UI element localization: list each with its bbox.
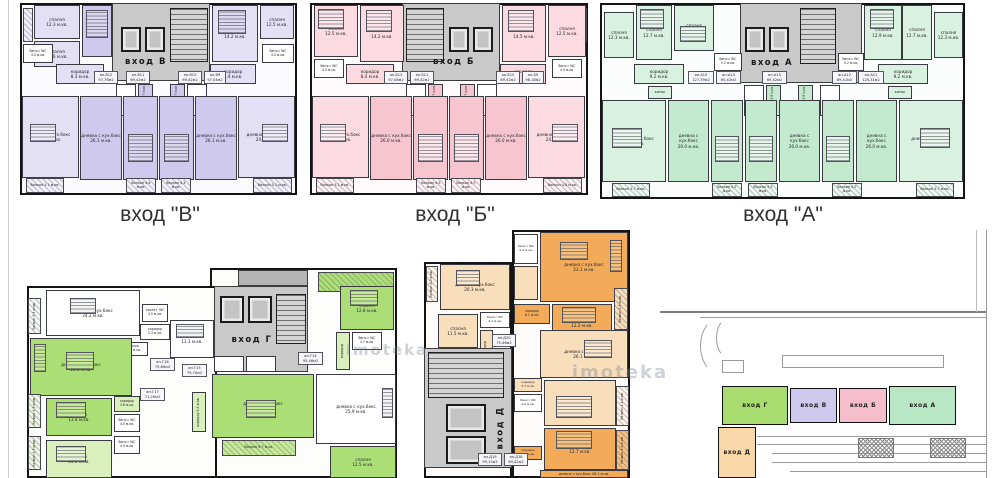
balcony: балкон 5.1 м.кв. xyxy=(316,178,354,193)
room-living: дневна с кух.бокс26.1 м.кв. xyxy=(80,96,122,180)
room-living-label: дневна с кух.бокс xyxy=(857,133,896,143)
table-icon xyxy=(560,242,588,260)
apartment-label-area: 79,70м2 xyxy=(187,371,202,376)
table-icon xyxy=(920,128,950,148)
room-bath: баня с WC4.0 м.кв. xyxy=(314,59,344,78)
balcony-label: балкон 6.7 м.кв. xyxy=(245,446,274,450)
room-corridor-area: 3.8 м.кв. xyxy=(120,404,134,408)
bed-icon xyxy=(680,26,706,42)
bed-icon xyxy=(749,136,773,162)
room-living: дневна с кух.бокс26.0 м.кв. xyxy=(370,96,412,180)
elevator-icon xyxy=(473,27,493,52)
room-bedroom-area: 14.5 м.кв. xyxy=(513,34,534,39)
room-bath: баня с WC4.0 м.кв. xyxy=(552,59,582,78)
entrance-title: вход Б xyxy=(424,56,484,68)
room-living-label: дневна с кух.бокс xyxy=(669,133,708,143)
room-bath: баня с WC4.0 м.кв. xyxy=(262,44,294,63)
apartment-label-area: 69,41м2 xyxy=(837,78,852,83)
room-bedroom-area: 12.3 м.кв. xyxy=(46,22,67,27)
room-bath-area: 4.0 м.кв. xyxy=(558,69,575,73)
entrance-caption-a: вход "А" xyxy=(718,203,848,227)
balcony-label: балкон 4.4 м.кв. xyxy=(127,182,155,190)
elevator-icon xyxy=(745,27,765,52)
elevator-icon xyxy=(248,296,272,323)
apartment-label-area: 69,42м2 xyxy=(500,78,515,83)
balcony-label: балкон 5.1 м.кв. xyxy=(31,184,60,188)
site-block-v-label: вход В xyxy=(800,402,826,409)
site-block-d-label: вход Д xyxy=(723,449,750,456)
balcony: балкон 4.5 м.кв. xyxy=(416,178,446,193)
balcony: балкон 5.7 м.кв. xyxy=(612,183,650,197)
room-living: дневна с кух.бокс26.0 м.кв. xyxy=(856,100,897,182)
room-bedroom-area: 12.9 м.кв. xyxy=(872,33,893,38)
room-bath-area: 4.0 м.кв. xyxy=(118,445,135,449)
room-bath-area: 5.2 м.кв. xyxy=(719,62,736,66)
room-bedroom-label: спалня xyxy=(906,27,927,32)
balcony-label: балкон 4.8 м.кв. xyxy=(548,184,577,188)
room-utility xyxy=(246,356,276,372)
apartment-label-area: 99,15м2 xyxy=(482,460,497,465)
bed-icon xyxy=(86,10,108,38)
apartment-label-label: ап.Б12 xyxy=(388,73,403,78)
bed-icon xyxy=(164,134,189,162)
entrance-title-label: вход Г xyxy=(232,335,273,345)
table-icon xyxy=(246,400,276,418)
table-icon xyxy=(584,340,612,358)
room-bedroom: спалня12.3 м.кв. xyxy=(604,12,634,58)
watermark-label: imoteka xyxy=(346,341,429,359)
elevator-icon xyxy=(769,27,789,52)
room-living-area: 25.9 м.кв. xyxy=(336,409,376,414)
table-icon xyxy=(66,352,94,370)
room-bath-area: 4.0 м.кв. xyxy=(320,69,337,73)
bed-icon xyxy=(128,134,153,162)
apartment-label: ап.Б1297,08м2 xyxy=(384,71,408,84)
parking-line xyxy=(757,436,986,437)
balcony: балкон 4.8 м.кв. xyxy=(543,178,582,193)
apartment-label-label: ап.Д18 xyxy=(508,455,523,460)
apartment-label: ап.А15127,39м2 xyxy=(688,71,714,84)
room-bedroom-area: 12.5 м.кв. xyxy=(266,22,287,27)
bed-icon xyxy=(218,10,246,34)
table-icon xyxy=(320,124,346,142)
apartment-label-label: ап.Г17 xyxy=(145,390,160,395)
room-bedroom-area: 12.7 м.кв. xyxy=(569,449,590,454)
room-corridor: коридор3.7 м.кв. xyxy=(514,378,542,392)
room-corridor-label: коридор 5.8 м.кв. xyxy=(197,397,201,426)
entrance-caption-v: вход "В" xyxy=(95,203,225,227)
apartment-label: ап.А1369,42м2 xyxy=(762,71,787,84)
sofa-icon xyxy=(382,388,393,418)
bed-icon xyxy=(556,431,592,449)
road-curve xyxy=(716,318,740,358)
room-corridor: коридор9.2 м.кв. xyxy=(878,64,928,84)
apartment-label: ап.Д1999,15м2 xyxy=(478,453,502,466)
balcony: балкон 4.5 м.кв. xyxy=(28,394,41,428)
balcony-label: балкон 4.8 м.кв. xyxy=(619,295,623,322)
apartment-label-area: 65,42м2 xyxy=(721,78,736,83)
balcony xyxy=(23,8,33,42)
room-toilet: тоалет. WC4.5 м.кв. xyxy=(142,304,168,322)
apartment-label: ап.А1269,41м2 xyxy=(832,71,857,84)
apartment-label-label: ап.А14 xyxy=(721,73,736,78)
room-living-area: 26.0 м.кв. xyxy=(780,144,819,149)
site-block-g-label: вход Г xyxy=(742,402,768,409)
room-bedroom-area: 12.7 м.кв. xyxy=(643,33,664,38)
balcony-label: балкон 5.7 м.кв. xyxy=(921,188,950,192)
room-storage: килер xyxy=(648,86,672,99)
room-corridor: коридор 5.8 м.кв. xyxy=(192,392,206,432)
apartment-label-area: 75,46м2 xyxy=(496,341,511,346)
apartment-label-label: ап.В11 xyxy=(130,73,145,78)
site-block-b-label: вход Б xyxy=(850,402,876,409)
room-bath: баня с WC4.0 м.кв. xyxy=(23,44,53,63)
apartment-label: ап.Г1679,86м2 xyxy=(150,358,175,371)
bed-icon xyxy=(826,136,850,162)
room-living-area: 26.0 м.кв. xyxy=(486,138,526,143)
bed-icon xyxy=(56,446,86,462)
apartment-label-label: ап.Б11 xyxy=(414,73,429,78)
room-living-area: 26.0 м.кв. xyxy=(669,144,708,149)
balcony: балкон 4.3 м.кв. xyxy=(28,436,41,470)
watermark-label: imoteka xyxy=(572,362,668,383)
room-bath-area: 4.2 м.кв. xyxy=(487,320,503,324)
room-corridor-area: 8.4 м.кв. xyxy=(224,74,243,79)
parking-line xyxy=(790,471,986,472)
room-living-label: дневна с кух.бокс xyxy=(780,133,819,143)
balcony-label: балкон 4.4 м.кв. xyxy=(162,182,190,190)
table-icon xyxy=(456,270,480,286)
stairs-icon xyxy=(800,8,836,64)
bed-icon xyxy=(870,9,894,29)
apartment-label-label: ап.Г14 xyxy=(303,354,318,359)
bed-icon xyxy=(350,290,378,306)
room-corridor-area: 9.2 м.кв. xyxy=(650,74,669,79)
room-utility xyxy=(214,356,244,372)
balcony-label: балкон 4.5 м.кв. xyxy=(833,186,861,194)
room-storage: килер xyxy=(888,86,912,99)
balcony-label: балкон 6.0 м.кв. xyxy=(430,270,434,297)
balcony: балкон 4.5 м.кв. xyxy=(451,178,481,193)
apartment-label-label: ап.Б10 xyxy=(500,73,515,78)
balcony: балкон 6.0 м.кв. xyxy=(426,266,438,302)
parking-island xyxy=(858,438,894,458)
bed-icon xyxy=(640,9,664,29)
entrance-title-label: вход Б xyxy=(433,57,475,67)
balcony: балкон 4.8 м.кв. xyxy=(614,288,628,330)
sidewalk xyxy=(782,355,944,368)
apartment-label: ап.В997,04м2 xyxy=(204,71,226,84)
apartment-label: ап.В1297,76м2 xyxy=(94,71,118,84)
room-living-area: 26.0 м.кв. xyxy=(857,144,896,149)
table-icon xyxy=(262,124,288,142)
room-bath-area: 4.0 м.кв. xyxy=(269,54,286,58)
apartment-label-label: ап.А13 xyxy=(767,73,782,78)
apartment-label: ап.А11125,31м2 xyxy=(858,71,884,84)
road-line xyxy=(986,230,987,478)
room-bedroom: спалня12.5 м.кв. xyxy=(548,5,586,57)
apartment-label-area: 97,04м2 xyxy=(207,78,222,83)
balcony: балкон 4.5 м.кв. xyxy=(748,183,778,197)
entrance-title-label: вход А xyxy=(751,58,793,68)
bed-icon xyxy=(318,9,344,29)
apartment-label-area: 125,31м2 xyxy=(862,78,880,83)
balcony: балкон 6.7 м.кв. xyxy=(222,440,296,456)
bed-icon xyxy=(176,324,204,338)
entrance-title: вход Г xyxy=(222,334,282,346)
room-bath: баня с WC5.2 м.кв. xyxy=(838,53,864,71)
apartment-label-label: ап.Г16 xyxy=(155,360,170,365)
room-bath-area: 4.0 м.кв. xyxy=(520,403,536,407)
balcony-label: балкон 5.7 м.кв. xyxy=(617,188,646,192)
balcony-label: балкон 5.1 м.кв. xyxy=(258,184,287,188)
room-bedroom-area: 12.5 м.кв. xyxy=(352,462,373,467)
room-corridor-area: 6.1 м.кв. xyxy=(525,314,539,318)
road-line xyxy=(660,311,986,313)
balcony: балкон 5.7 м.кв. xyxy=(916,183,954,197)
balcony: балкон 4.4 м.кв. xyxy=(616,386,629,426)
apartment-label-label: ап.Г15 xyxy=(187,366,202,371)
entrance-title: вход Д xyxy=(492,404,510,452)
room-toilet-area: 4.5 м.кв. xyxy=(145,313,164,317)
room-bedroom-area: 13.3 м.кв. xyxy=(181,339,202,344)
apartment-label-label: ап.А12 xyxy=(837,73,852,78)
bed-icon xyxy=(418,134,443,162)
site-block-g: вход Г xyxy=(722,386,788,425)
bed-icon xyxy=(508,10,534,32)
room-bedroom: спалня12.5 м.кв. xyxy=(330,446,396,478)
room-living: дневна с кух.бокс26.0 м.кв. xyxy=(485,96,527,180)
sofa-icon xyxy=(34,344,46,372)
room-bath: баня с WC4.0 м.кв. xyxy=(514,394,542,412)
room-bedroom-area: 12.5 м.кв. xyxy=(556,31,577,36)
apartment-label: ап.Г1579,70м2 xyxy=(182,364,207,377)
balcony: балкон 4.4 м.кв. xyxy=(161,178,191,193)
room-living-area: 23.1 м.кв. xyxy=(564,267,604,272)
room-bath: баня с WC4.2 м.кв. xyxy=(480,312,510,328)
room-living-area: 26.1 м.кв. xyxy=(196,138,236,143)
room-corridor-area: 9.2 м.кв. xyxy=(894,74,913,79)
apartment-label: ап.Б998,18м2 xyxy=(522,71,544,84)
room-corridor-area: 8.4 м.кв. xyxy=(361,74,380,79)
room-bedroom-area: 12.5 м.кв. xyxy=(325,31,346,36)
floor-plan-sheet: вход "В" вход "Б" вход "А" спалня12.3 м.… xyxy=(0,0,1000,478)
entrance-title-label: вход Д xyxy=(496,406,506,449)
room-bedroom-area: 12.7 м.кв. xyxy=(906,33,927,38)
balcony-label: балкон 4.5 м.кв. xyxy=(749,186,777,194)
site-block-a-label: вход А xyxy=(909,402,935,409)
apartment-label: ап.В1169,42м2 xyxy=(126,71,150,84)
site-block-b: вход Б xyxy=(839,388,887,423)
balcony-label: балкон 5.1 м.кв. xyxy=(321,184,350,188)
room-living: дневна с кух.бокс26.1 м.кв. xyxy=(195,96,237,180)
stairs-icon xyxy=(170,8,208,62)
room-corridor-area: 3.7 м.кв. xyxy=(521,385,534,389)
balcony: балкон 5.4 м.кв. xyxy=(28,298,41,334)
parking-island xyxy=(930,438,966,458)
parking-line xyxy=(772,462,986,463)
room-bath: баня с WC5.2 м.кв. xyxy=(714,53,742,71)
apartment-label-label: ап.А11 xyxy=(862,73,880,78)
room-living-area: 20.3 м.кв. xyxy=(455,287,495,292)
apartment-label-area: 127,39м2 xyxy=(692,78,710,83)
room-bedroom-area: 12.3 м.кв. xyxy=(938,35,959,40)
apartment-label-label: ап.А15 xyxy=(692,73,710,78)
apartment-label: ап.Д2075,46м2 xyxy=(492,334,516,347)
room-corridor: коридор5.3 м.кв. xyxy=(140,324,170,340)
bed-icon xyxy=(366,10,392,32)
apartment-label-area: 69,42м2 xyxy=(508,460,523,465)
room-storage-label: килер xyxy=(655,90,666,94)
apartment-label: ап.Д1869,42м2 xyxy=(504,453,528,466)
apartment-label-area: 95,46м2 xyxy=(303,359,318,364)
apartment-label-area: 71,20м2 xyxy=(145,395,160,400)
table-icon xyxy=(30,124,56,142)
balcony-label: балкон 5.4 м.кв. xyxy=(33,302,37,329)
room-bedroom-area: 11.5 м.кв. xyxy=(447,331,468,336)
balcony-label: балкон 4.5 м.кв. xyxy=(33,397,37,424)
apartment-label-area: 69,42м2 xyxy=(767,78,782,83)
room-bath-area: 4.0 м.кв. xyxy=(118,423,135,427)
road-line xyxy=(976,230,977,312)
elevator-icon xyxy=(145,27,165,52)
watermark: imoteka xyxy=(540,358,700,386)
apartment-label-area: 69,42м2 xyxy=(414,78,429,83)
elevator-icon xyxy=(449,27,469,52)
apartment-label: ап.В1069,42м2 xyxy=(178,71,202,84)
room-corridor: коридор6.1 м.кв. xyxy=(514,304,550,324)
balcony-label: балкон 4.3 м.кв. xyxy=(33,439,37,466)
room-bedroom-area: 12.8 м.кв. xyxy=(356,308,377,313)
entrance-title: вход В xyxy=(116,56,176,68)
room-living-area: 26.1 м.кв. xyxy=(81,138,121,143)
room-bath: баня с WC4.0 м.кв. xyxy=(114,414,140,432)
apartment-label: ап.Г1771,20м2 xyxy=(140,388,165,401)
balcony-label: балкон 4.5 м.кв. xyxy=(713,186,741,194)
apartment-label: ап.Б1069,42м2 xyxy=(496,71,520,84)
room-corridor-area: 5.3 м.кв. xyxy=(148,332,162,336)
bed-icon xyxy=(454,134,479,162)
apartment-label-area: 97,76м2 xyxy=(98,78,113,83)
room-bedroom-area: 14.2 м.кв. xyxy=(224,34,245,39)
room-bedroom-area: 12.3 м.кв. xyxy=(608,35,629,40)
entrance-caption-b: вход "Б" xyxy=(390,203,520,227)
balcony: балкон 4.8 м.кв. xyxy=(616,430,629,470)
apartment-label-area: 97,08м2 xyxy=(388,78,403,83)
room-storage-label: килер xyxy=(895,90,906,94)
entrance-canopy xyxy=(238,270,308,286)
bed-icon xyxy=(56,402,86,418)
room-wardrobe xyxy=(514,266,538,300)
apartment-label: ап.А1465,42м2 xyxy=(716,71,741,84)
room-bedroom-area: 14.2 м.кв. xyxy=(371,34,392,39)
balcony-label: балкон 4.5 м.кв. xyxy=(452,182,480,190)
apartment-label-area: 79,86м2 xyxy=(155,365,170,370)
room-living-label: дневна с кух.бокс 26.1 м.кв. xyxy=(559,472,610,476)
room-living: дневна с кух.бокс26.0 м.кв. xyxy=(668,100,709,182)
room-corridor-area: 8.3 м.кв. xyxy=(71,74,90,79)
balcony-label: балкон 4.4 м.кв. xyxy=(621,392,625,419)
balcony: балкон 4.4 м.кв. xyxy=(126,178,156,193)
sidewalk xyxy=(722,360,744,373)
bed-icon xyxy=(556,396,592,418)
room-bedroom: спалня12.3 м.кв. xyxy=(34,5,80,39)
room-bedroom: спалня12.7 м.кв. xyxy=(902,5,932,60)
room-bedroom: спалня12.5 м.кв. xyxy=(260,5,294,39)
balcony-label: балкон 4.8 м.кв. xyxy=(621,436,625,463)
room-bath: баня с WC4.4 м.кв. xyxy=(514,234,538,264)
apartment-label: ап.Б1169,42м2 xyxy=(410,71,434,84)
table-icon xyxy=(70,298,96,314)
apartment-label-area: 69,42м2 xyxy=(130,78,145,83)
room-living-area: 26.0 м.кв. xyxy=(371,138,411,143)
room-corridor: коридор9.2 м.кв. xyxy=(634,64,684,84)
site-block-d: вход Д xyxy=(718,427,756,478)
page-edge-line xyxy=(8,0,9,478)
elevator-icon xyxy=(446,404,486,432)
sofa-icon xyxy=(610,240,622,272)
room-living: дневна с кух.бокс 26.1 м.кв. xyxy=(540,470,628,478)
apartment-label-label: ап.В10 xyxy=(182,73,197,78)
balcony-label: балкон 4.5 м.кв. xyxy=(417,182,445,190)
balcony: балкон 5.1 м.кв. xyxy=(26,178,64,193)
site-block-a: вход А xyxy=(889,386,956,425)
balcony: балкон 4.5 м.кв. xyxy=(832,183,862,197)
room-bedroom: спалня12.3 м.кв. xyxy=(934,12,963,58)
elevator-icon xyxy=(220,296,244,323)
table-icon xyxy=(552,124,578,142)
bed-icon xyxy=(562,307,596,323)
apartment-label-area: 69,42м2 xyxy=(182,78,197,83)
room-bath-area: 4.4 м.кв. xyxy=(518,249,534,253)
road-line xyxy=(700,317,986,318)
room-bath-area: 5.2 м.кв. xyxy=(842,62,859,66)
elevator-icon xyxy=(121,27,141,52)
apartment-label-label: ап.Д20 xyxy=(496,336,511,341)
balcony: балкон 5.1 м.кв. xyxy=(253,178,292,193)
room-bath: баня с WC4.0 м.кв. xyxy=(114,436,140,454)
room-living: дневна с кух.бокс26.0 м.кв. xyxy=(779,100,820,182)
apartment-label-label: ап.Д19 xyxy=(482,455,497,460)
site-block-v: вход В xyxy=(790,388,837,423)
entrance-title: вход А xyxy=(740,57,804,69)
balcony: балкон 4.5 м.кв. xyxy=(712,183,742,197)
room-corridor: коридор3.8 м.кв. xyxy=(114,396,140,412)
entrance-title-label: вход В xyxy=(125,57,167,67)
apartment-label-area: 98,18м2 xyxy=(525,78,540,83)
table-icon xyxy=(612,128,642,148)
bed-icon xyxy=(715,136,739,162)
room-bedroom-area: 12.2 м.кв. xyxy=(571,323,592,328)
apartment-label-label: ап.В12 xyxy=(98,73,113,78)
watermark: imoteka xyxy=(322,338,452,362)
apartment-label: ап.Г1495,46м2 xyxy=(298,352,323,365)
stairs-icon xyxy=(406,8,444,62)
room-bath-area: 4.0 м.кв. xyxy=(29,54,46,58)
